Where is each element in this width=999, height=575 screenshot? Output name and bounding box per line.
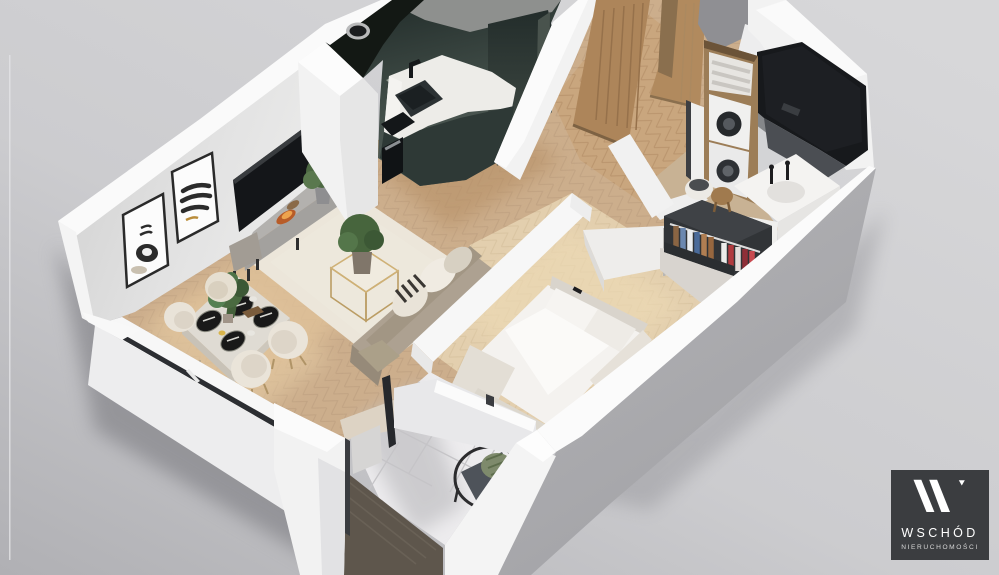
svg-text:WSCHÓD: WSCHÓD [901,525,978,540]
svg-text:NIERUCHOMOŚCI: NIERUCHOMOŚCI [901,542,979,551]
